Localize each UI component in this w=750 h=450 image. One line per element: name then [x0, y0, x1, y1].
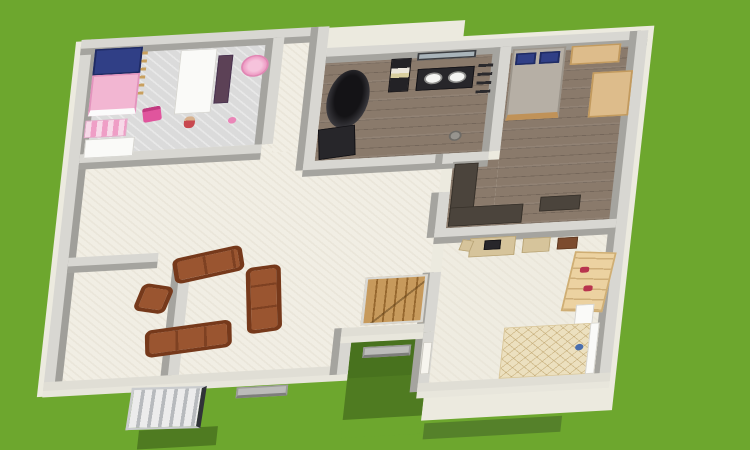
kids-dresser-pink[interactable] — [84, 118, 128, 138]
wardrobe-pine-red-item-b[interactable] — [583, 285, 593, 291]
small-table-brown[interactable] — [557, 237, 578, 250]
bed-top-right-pillow-left[interactable] — [515, 52, 536, 65]
bench-dark-top-right[interactable] — [539, 195, 581, 212]
bathroom-towel-shelf[interactable] — [388, 58, 412, 93]
lawn — [0, 0, 750, 450]
house-floor-plan — [0, 6, 687, 450]
side-table-bedroom-right[interactable] — [522, 237, 551, 253]
bathroom-corner-cabinet[interactable] — [318, 125, 356, 160]
laptop-on-desk[interactable] — [484, 240, 502, 250]
wardrobe-wood-top-right[interactable] — [588, 70, 633, 117]
bunk-bed-bottom-pink[interactable] — [88, 73, 140, 116]
dresser-wood-top-right[interactable] — [570, 43, 622, 65]
cellar-door-shadow — [137, 426, 218, 449]
staircase[interactable] — [360, 274, 428, 326]
sofa-three-seat-vertical[interactable] — [246, 264, 282, 335]
kids-wardrobe-white[interactable] — [174, 48, 218, 114]
bunk-bed-top[interactable] — [92, 47, 143, 76]
cellar-door-slatted[interactable] — [125, 386, 206, 430]
garden-bench-west[interactable] — [236, 385, 289, 399]
wardrobe-pine-red-item-a[interactable] — [580, 267, 590, 273]
wall-living-bedroom-divider-a — [442, 153, 454, 164]
bed-top-right-pillow-right[interactable] — [539, 51, 560, 64]
kids-dresser-white[interactable] — [83, 137, 135, 159]
